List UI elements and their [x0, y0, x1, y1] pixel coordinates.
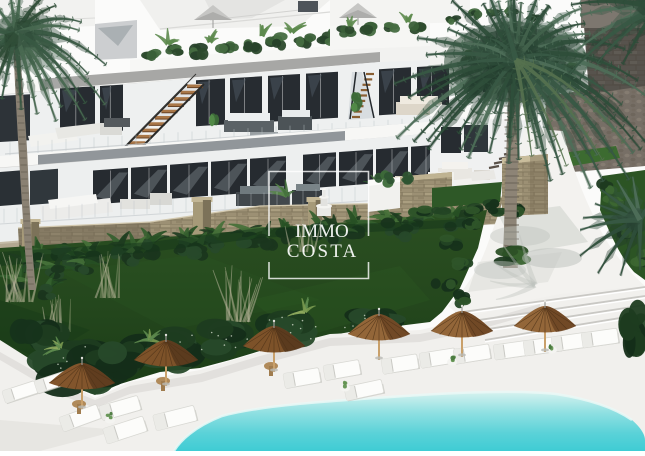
svg-text:COSTA: COSTA	[287, 241, 359, 262]
svg-text:IMMO: IMMO	[295, 221, 349, 242]
